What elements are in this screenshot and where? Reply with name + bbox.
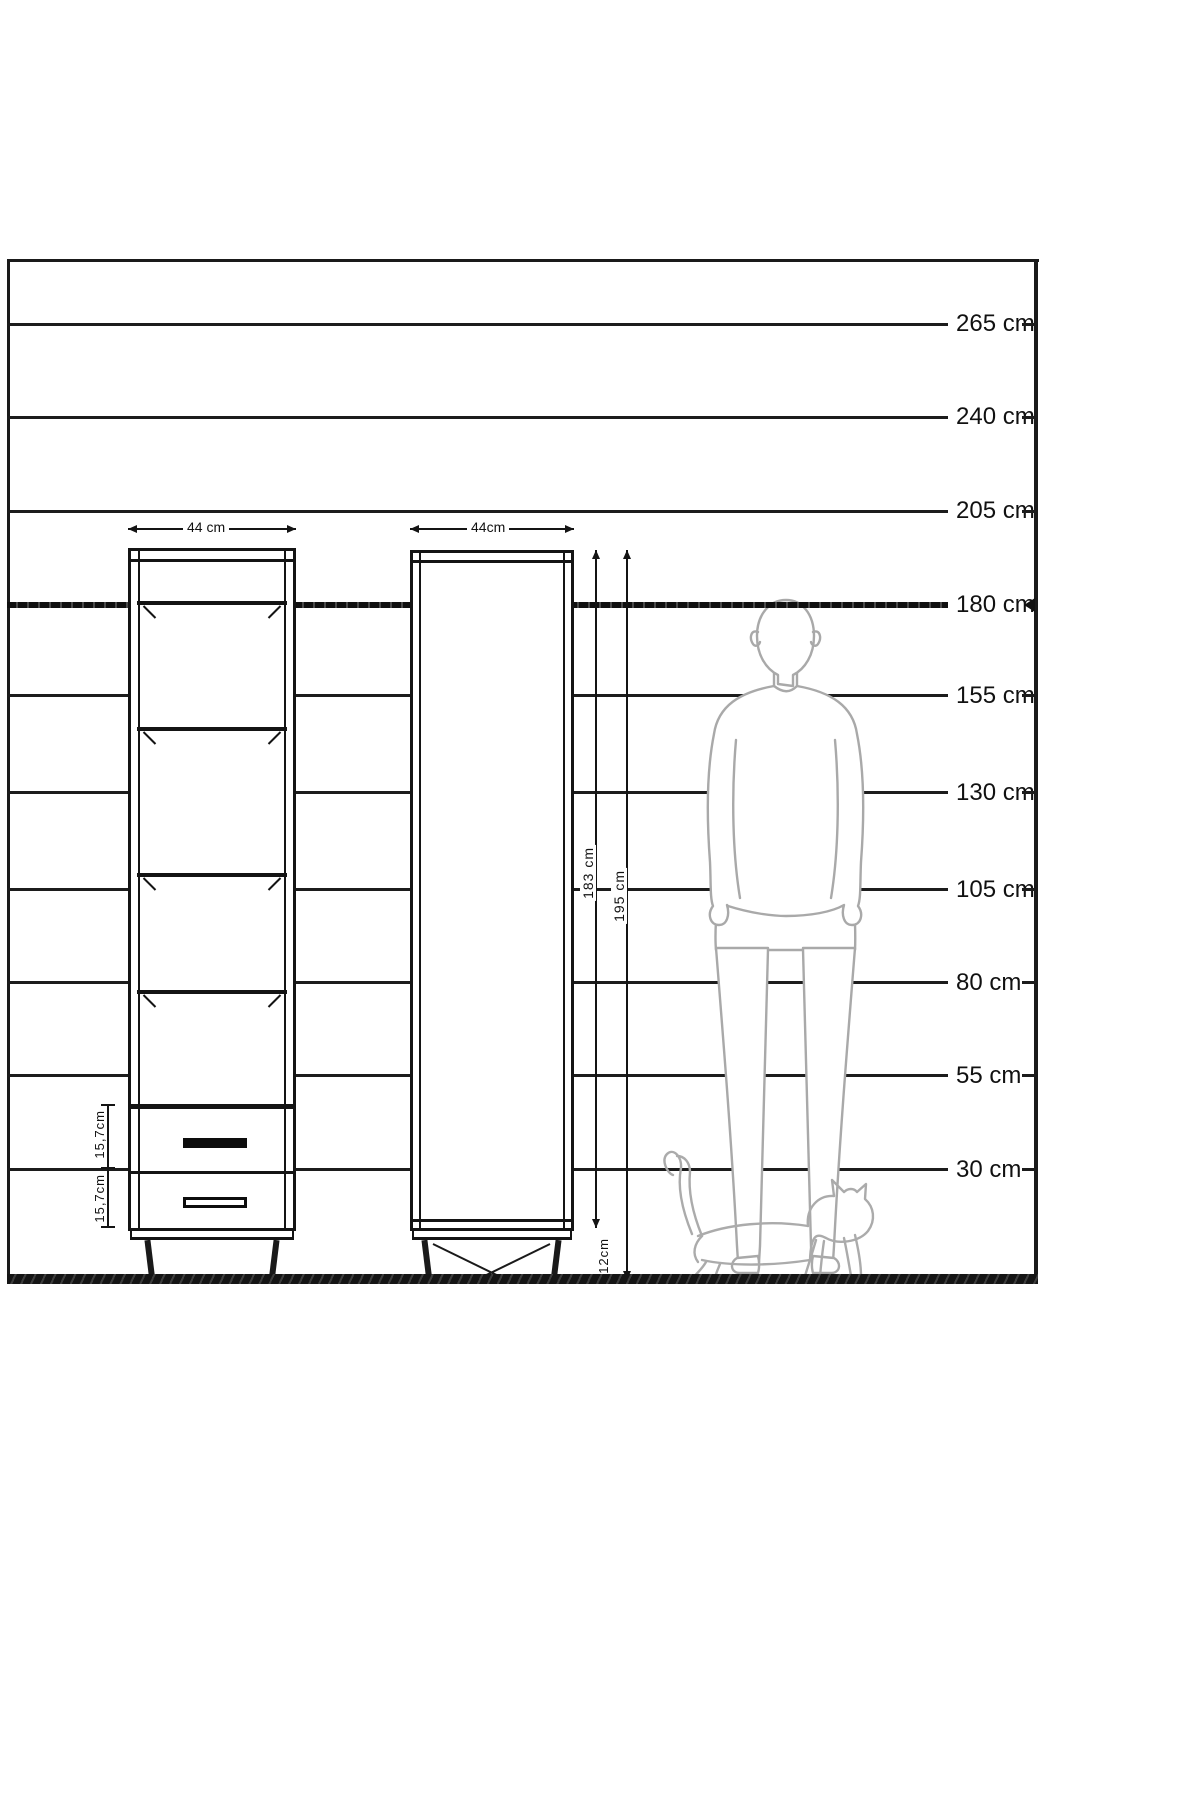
- door-cabinet: [410, 550, 574, 1231]
- corner-brace: [268, 877, 281, 890]
- body-height-label: 183 cm: [580, 845, 596, 901]
- label-dash: [1022, 323, 1036, 326]
- label-dash: [1022, 888, 1036, 891]
- arrow-icon: [287, 525, 296, 533]
- arrow-icon: [1024, 598, 1035, 612]
- label-dash: [1022, 694, 1036, 697]
- corner-brace: [268, 994, 281, 1007]
- shelf-cabinet: [128, 548, 296, 1231]
- frame-top-border: [7, 259, 1039, 262]
- height-label-text: 30 cm: [956, 1156, 1021, 1183]
- arrow-icon: [592, 1219, 600, 1228]
- drawer-handle-1: [183, 1138, 247, 1148]
- dimension-diagram: 44 cm 44cm 183 cm 195 cm 12cm 15,7cm 15,…: [0, 0, 1200, 1800]
- height-line-240: [7, 416, 948, 419]
- arrow-icon: [592, 550, 600, 559]
- height-line-265: [7, 323, 948, 326]
- door-left-edge: [419, 553, 421, 1228]
- frame-left-border: [7, 259, 10, 1282]
- cabinet-top-rail: [413, 560, 571, 563]
- drawer-section-top: [131, 1104, 293, 1109]
- cabinet-base: [130, 1231, 294, 1240]
- shelf-4: [137, 990, 287, 994]
- height-label-text: 55 cm: [956, 1062, 1021, 1089]
- leg-brace: [485, 1243, 551, 1276]
- right-side-inner-line: [284, 551, 286, 1228]
- door-right-edge: [563, 553, 565, 1228]
- label-dash: [1022, 1074, 1036, 1077]
- drawer-handle-2: [183, 1197, 247, 1208]
- label-dash: [1022, 416, 1036, 419]
- shelf-1: [137, 601, 287, 605]
- arrow-icon: [128, 525, 137, 533]
- corner-brace: [143, 994, 156, 1007]
- leg-brace: [433, 1243, 499, 1276]
- label-dash: [1022, 791, 1036, 794]
- label-dash: [1022, 1168, 1036, 1171]
- cat-silhouette: [648, 1142, 888, 1284]
- floor-line: [7, 1274, 1038, 1284]
- dimension-tick: [101, 1226, 115, 1228]
- corner-brace: [143, 605, 156, 618]
- left-side-inner-line: [138, 551, 140, 1228]
- cabinet-top-rail: [131, 559, 293, 562]
- drawer-divider: [131, 1171, 293, 1174]
- corner-brace: [143, 731, 156, 744]
- arrow-icon: [623, 550, 631, 559]
- drawer1-height-label: 15,7cm: [92, 1108, 107, 1161]
- cabinet-base: [412, 1231, 572, 1240]
- shelf-2: [137, 727, 287, 731]
- leg-height-label: 12cm: [596, 1236, 611, 1276]
- width-label-left: 44 cm: [183, 519, 229, 535]
- arrow-icon: [410, 525, 419, 533]
- dimension-tick: [101, 1167, 115, 1169]
- total-height-label: 195 cm: [611, 868, 627, 924]
- door-bottom-edge: [413, 1219, 571, 1222]
- label-dash: [1022, 510, 1036, 513]
- arrow-icon: [565, 525, 574, 533]
- drawer2-height-label: 15,7cm: [92, 1172, 107, 1225]
- corner-brace: [268, 605, 281, 618]
- dimension-tick: [101, 1104, 115, 1106]
- drawer-dimension-line: [107, 1104, 109, 1228]
- label-dash: [1022, 981, 1036, 984]
- width-label-right: 44cm: [467, 519, 509, 535]
- corner-brace: [143, 877, 156, 890]
- height-label-text: 180 cm: [956, 591, 1035, 618]
- height-label-180: 180 cm: [956, 589, 1034, 621]
- shelf-3: [137, 873, 287, 877]
- corner-brace: [268, 731, 281, 744]
- height-label-text: 80 cm: [956, 969, 1021, 996]
- height-line-205: [7, 510, 948, 513]
